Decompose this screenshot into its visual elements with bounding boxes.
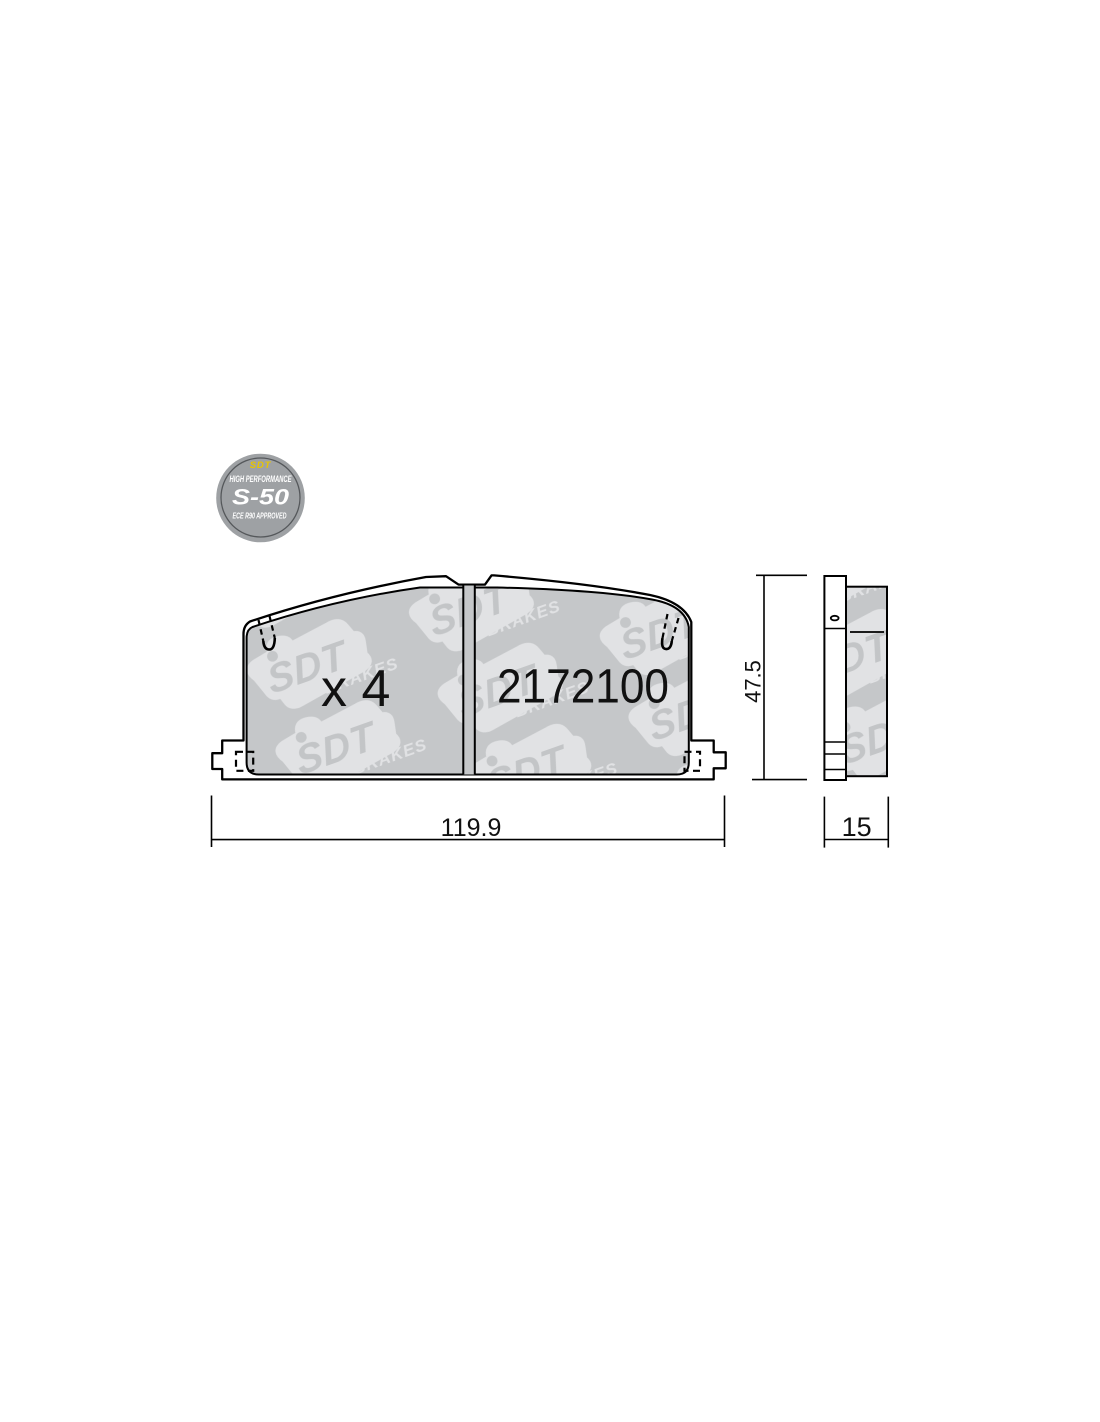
svg-text:47.5: 47.5: [741, 660, 766, 703]
svg-text:x 4: x 4: [321, 660, 390, 718]
svg-text:119.9: 119.9: [441, 814, 502, 842]
svg-text:SDT: SDT: [250, 460, 272, 471]
svg-text:2172100: 2172100: [497, 661, 669, 714]
svg-text:ECE R90 APPROVED: ECE R90 APPROVED: [233, 510, 287, 520]
svg-text:HIGH PERFORMANCE: HIGH PERFORMANCE: [230, 474, 293, 484]
svg-text:15: 15: [842, 812, 872, 842]
svg-text:S-50: S-50: [232, 484, 290, 509]
